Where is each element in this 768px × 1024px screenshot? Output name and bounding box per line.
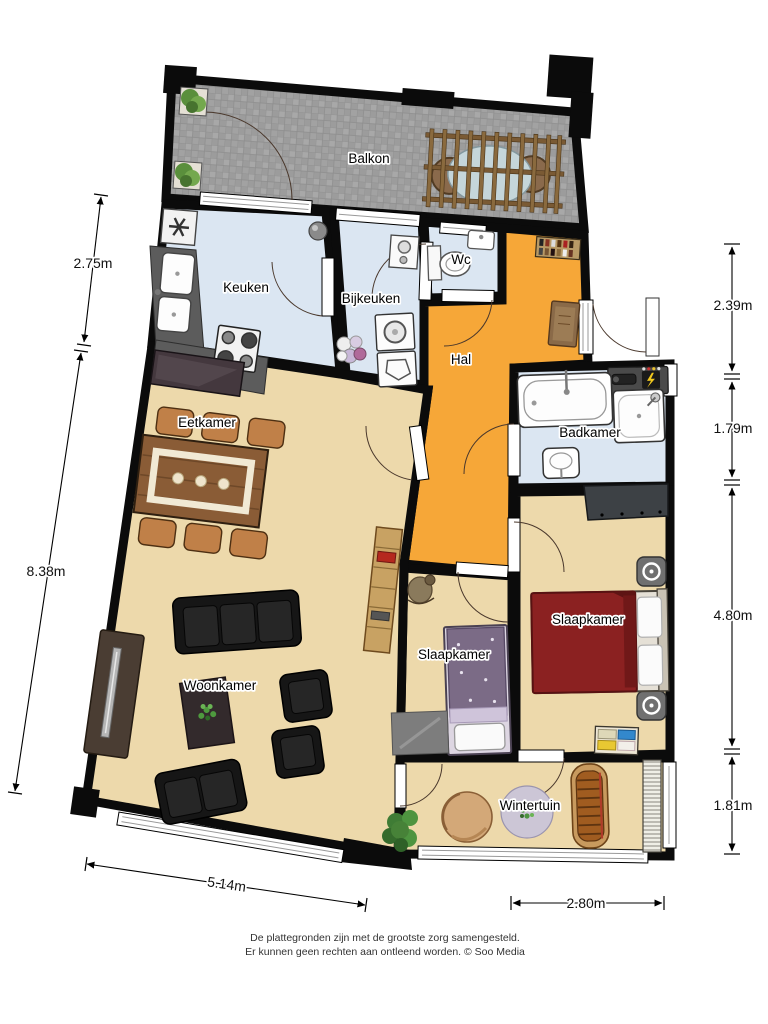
front-door <box>579 298 659 356</box>
single-bed <box>444 625 511 755</box>
freezer <box>161 209 198 246</box>
room-label-eetkamer: Eetkamer <box>178 415 236 430</box>
dimension-label-bottom-right: 2.80m <box>567 895 606 911</box>
room-label-slaapkamer-rechts: Slaapkamer <box>552 612 625 627</box>
footer-line-2: Er kunnen geen rechten aan ontleend word… <box>245 946 525 958</box>
bathroom-sink <box>542 447 579 478</box>
nightstand <box>637 691 666 720</box>
dryer <box>377 351 417 387</box>
dimension-label-left-main: 8.38m <box>27 563 66 579</box>
dimension-label-right-4: 1.81m <box>714 797 753 813</box>
dining-chair <box>229 528 268 559</box>
room-label-woonkamer: Woonkamer <box>184 678 257 693</box>
nightstand <box>637 557 666 586</box>
laundry-pile <box>337 336 366 363</box>
radiator <box>643 760 661 852</box>
dimension-label-left-top: 2.75m <box>74 255 113 271</box>
sofa-large <box>172 590 302 655</box>
balcony-plant-1 <box>179 87 208 116</box>
bench <box>571 763 610 848</box>
room-label-slaapkamer-links: Slaapkamer <box>418 647 491 662</box>
room-label-wintertuin: Wintertuin <box>500 798 561 813</box>
decor-sphere <box>309 222 327 240</box>
dimension-label-right-2: 1.79m <box>714 420 753 436</box>
shoe-rack <box>535 237 580 260</box>
bathtub <box>517 368 613 427</box>
shower <box>613 389 665 443</box>
wardrobe <box>584 484 668 520</box>
dimension-label-right-1: 2.39m <box>714 297 753 313</box>
armchair <box>271 725 325 779</box>
dining-chair <box>183 523 222 554</box>
round-chair <box>442 792 492 842</box>
room-label-bijkeuken: Bijkeuken <box>342 291 401 306</box>
room-label-balkon: Balkon <box>348 151 389 166</box>
boiler <box>389 235 419 269</box>
wintertuin-window-right <box>663 762 676 848</box>
footer-line-1: De plattegronden zijn met de grootste zo… <box>250 932 520 944</box>
balcony-plant-2 <box>173 161 202 190</box>
dining-chair <box>247 418 286 449</box>
room-label-keuken: Keuken <box>223 280 269 295</box>
room-label-hal: Hal <box>451 352 471 367</box>
doormat <box>548 301 580 347</box>
room-label-badkamer: Badkamer <box>559 425 621 440</box>
washing-machine <box>375 313 415 351</box>
floorplan-canvas: Balkon Keuken Bijkeuken Wc Hal Eetkamer … <box>0 0 768 1024</box>
dimension-label-bottom-left: 5.14m <box>206 873 247 894</box>
dining-chair <box>138 517 177 548</box>
dresser <box>595 726 639 754</box>
double-bed <box>531 589 669 693</box>
dimension-label-right-3: 4.80m <box>714 607 753 623</box>
armchair <box>279 669 333 723</box>
footer: De plattegronden zijn met de grootste zo… <box>245 932 525 958</box>
wc-sink <box>467 230 494 250</box>
room-label-wc: Wc <box>451 252 471 267</box>
